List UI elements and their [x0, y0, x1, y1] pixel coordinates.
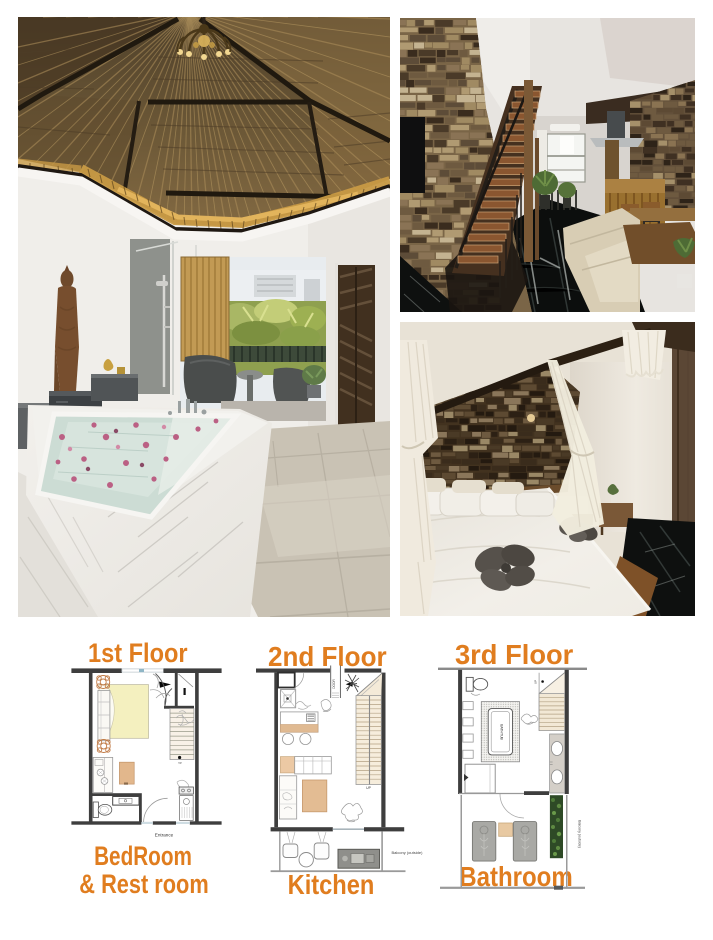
svg-text:BATHTUB: BATHTUB — [500, 724, 504, 740]
svg-text:DOOR: DOOR — [332, 679, 336, 689]
svg-text:UP: UP — [534, 680, 538, 684]
svg-text:Entrance: Entrance — [155, 833, 174, 838]
svg-text:Balcony (outside): Balcony (outside) — [578, 820, 582, 848]
svg-text:UP: UP — [366, 786, 371, 790]
svg-text:up: up — [178, 761, 182, 765]
svg-text:Balcony (outside): Balcony (outside) — [392, 850, 424, 855]
